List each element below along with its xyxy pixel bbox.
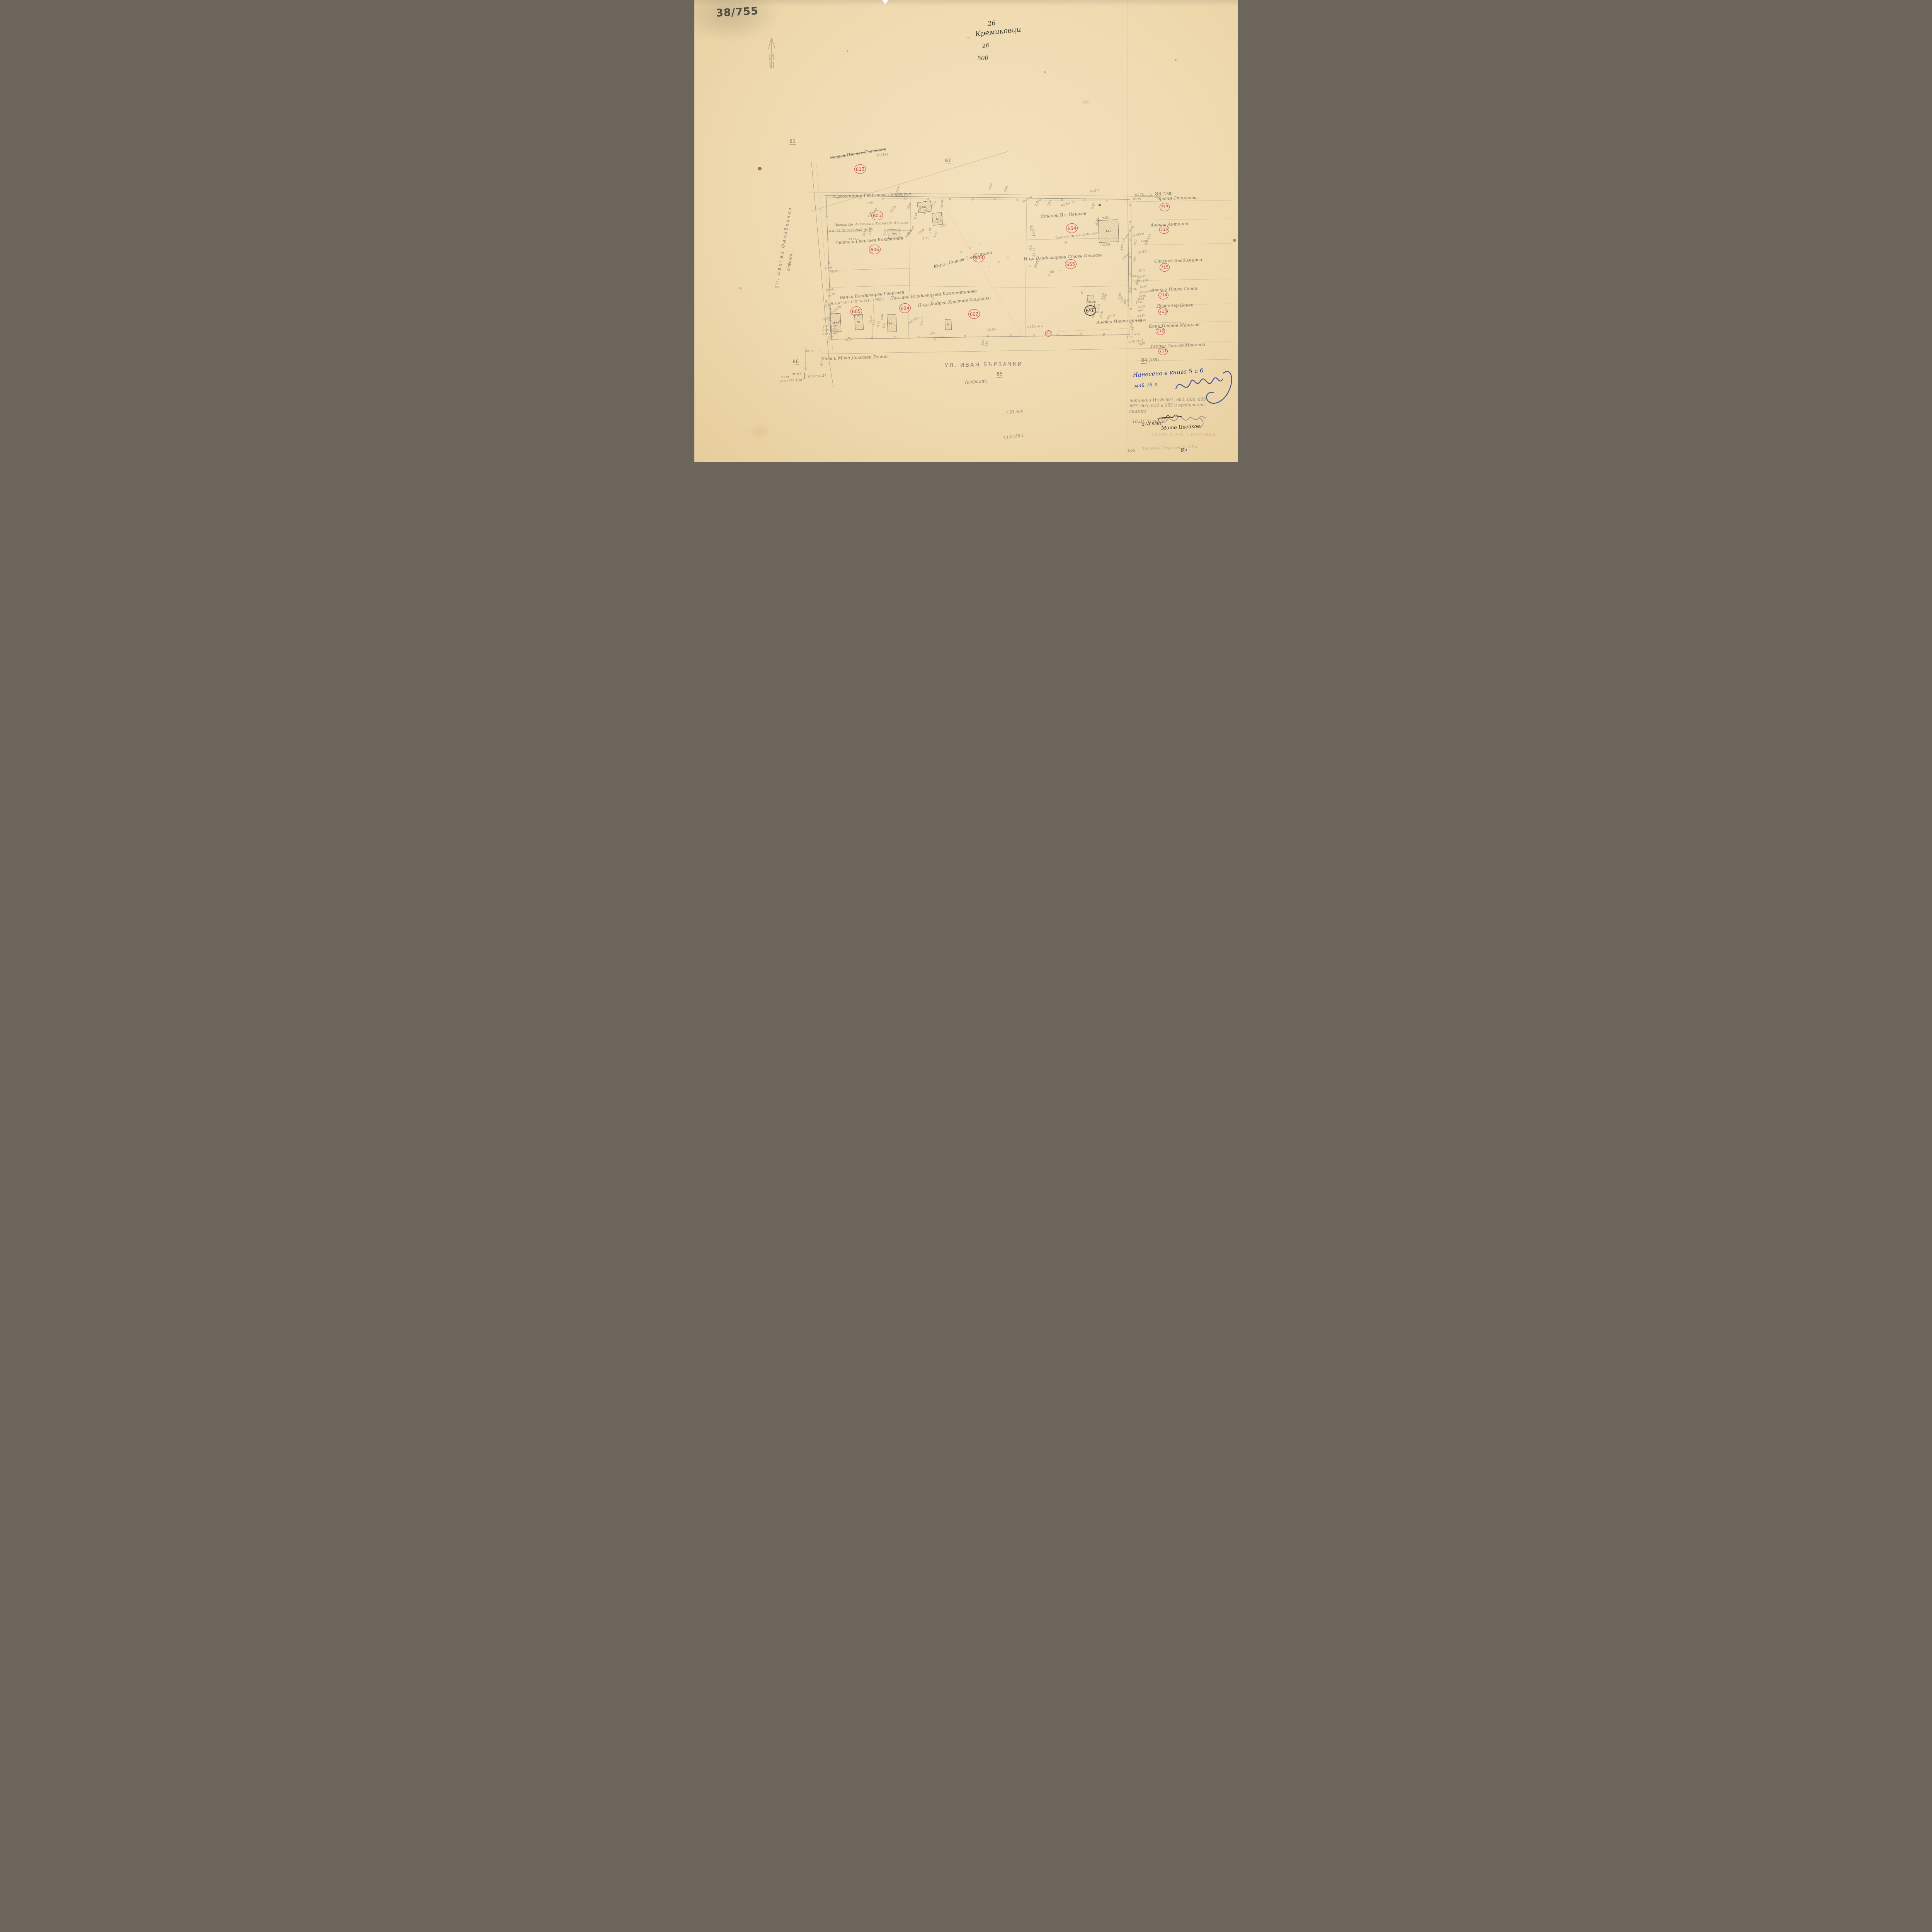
measurement: Н [1065,240,1068,245]
parcel-number-601: 601 [871,210,883,220]
measurement: 11.68 [868,226,872,235]
measurement: пт 100 [790,379,802,383]
map-ref-84: 84(189) [1141,356,1159,363]
building-label: МН [891,232,897,236]
measurement: 58- [1122,238,1126,243]
measurement: 42.50 [1061,201,1070,207]
measurement: 1359 [918,228,925,235]
measurement: -23.59- [847,237,857,241]
annotation-extra-5: Вр [1180,447,1187,453]
measurement: 1013 [981,338,985,345]
measurement: 17.46 [826,288,834,292]
measurement: -10.03- [1100,243,1111,247]
measurement: 8.52 [877,321,880,327]
annotation-extra-1: 13.VI.58.1 [1003,433,1024,440]
measurement: 2.95 [929,227,932,233]
measurement: -28.04- [844,338,853,342]
building-М: М [945,319,952,330]
measurement: 3.59 [1133,274,1139,277]
measurement: -9.91- [1101,216,1110,220]
map-ref-number: 85 [997,371,1003,378]
parcel-number-717: 717 [1159,202,1170,212]
measurement: 26 пм [806,349,814,352]
measurement: 5562 [1136,300,1143,304]
measurement: 3.85 [1091,202,1096,210]
measurement: 4966 [1003,185,1009,192]
parcel-number-602: 602 [968,308,980,319]
parcel-owner-711: Георги Павлов Манолов [1150,342,1205,349]
measurement: 1602.50 [1021,196,1032,204]
building-М: М [932,212,943,226]
measurement: 17.96 [824,266,832,270]
measurement: -8.71- [922,236,930,240]
measurement: 1202 [1032,229,1036,237]
measurement: 24-27 [1032,248,1036,257]
parcel-number-612: 612 [854,163,866,174]
measurement: 4402- [1120,243,1124,251]
parcel-owner-712: Коци Павлов Манолов [1149,322,1200,329]
measurement: 2.18 [1126,335,1133,339]
annotation-extra-6: Лада и Мика Димкови Тошин [821,354,888,361]
building-label: МС [921,205,927,209]
measurement: 16.79 [827,292,836,298]
measurement: 833 [985,341,988,347]
measurement: 321 [1131,325,1135,331]
map-ref-83: 83(188) [1155,190,1173,197]
annotation-extra-4: ГЕОРГИ АЛ. ГЕОРГИЕВ [1152,432,1216,437]
parcel-owner-715: Стамой Владимиров [1154,257,1202,264]
measurement: К [1081,291,1083,295]
parcel-number-715: 715 [1159,263,1170,272]
map-ref-81: 81 [789,138,796,144]
measurement: пт 87 [792,372,801,376]
map-ref-86: 86 [793,358,799,364]
measurement: 1.88 [929,332,935,335]
map-ref-number: 82 [945,157,951,164]
map-ref-number: 83 [1155,190,1161,197]
building-label: М [935,217,939,221]
map-ref-number: 81 [789,138,796,145]
measurement: 4.48 [1129,340,1135,344]
annotation-extra-3: Георги А. Георгиев. № 105 х [1143,445,1197,451]
measurement: 1010 [1126,299,1130,306]
measurement: м 370 [781,376,789,379]
measurement: 1665 [908,319,915,325]
measurement: 280 [1133,256,1137,262]
building-label: 1ПМЖ [1085,300,1096,304]
map-ref-suffix: (189) [1148,358,1159,362]
measurement: 8730 [1129,225,1135,233]
building-label: М [946,323,950,326]
measurement: 263 [1047,199,1052,206]
building-МС: МС [854,314,864,330]
measurement: 6.43 [933,231,938,238]
measurement: 8.40 [881,314,884,320]
measurement: } [803,372,807,380]
measurement: 7.60 [867,201,873,205]
parcel-owner-601: Александрия Георгиева Георгиева [833,191,911,199]
measurement: 8.43 [914,213,918,219]
measurement: а 190 м² у [1027,325,1043,329]
measurement: 5.00 [1134,332,1141,336]
parcel-number-601: 601 [1044,330,1052,337]
measurement: 053- [1095,307,1100,310]
map-annotation-layer: 612Георги Пранев Тютюков(7316)601Алексан… [694,0,1238,462]
measurement: 4.26 [882,322,886,328]
building-МН: МН [1098,219,1119,243]
map-ref-number: 84 [1141,357,1147,364]
annotation-extra-0: 7.XI.56г. [1006,409,1024,415]
measurement: 11.45 [872,318,876,326]
measurement: 2681 [1034,260,1039,269]
parcel-number-654: 654 [1066,223,1078,233]
map-ref-number: 86 [793,358,799,365]
building-МН: МН [888,229,901,239]
parcel-owner-713: Димитър Бонев [1156,303,1194,309]
building-1ПМЖ: 1ПМЖ [1087,295,1095,309]
measurement: 620 [1133,239,1138,245]
measurement: 5.30 [1129,286,1133,292]
measurement: 27.25 [931,297,935,305]
measurement: -22.67- [986,328,996,332]
measurement: 8.53 [883,229,887,236]
measurement: 5943 [1136,308,1144,313]
parcel-owner-714: Алексо Илиев Ганев [1151,286,1197,293]
measurement: 1245 [1132,233,1139,238]
measurement: 28 м 07 [780,379,790,383]
measurement: 4.98 [827,303,831,310]
parcel-note-654-0: Станой Сп. Владимиров [1054,231,1098,240]
parcel-note-612-0: (7316) [877,153,888,158]
measurement: (6281) [1090,189,1099,193]
parcel-owner-656: Алексо Илиев Ганев [1096,318,1142,325]
building-МС: МС [917,201,932,213]
measurement: -6.41- [830,270,838,274]
building-label: МН [1105,229,1111,233]
map-ref-suffix: (188) [1162,192,1173,196]
building-label: 2МН [831,321,839,325]
measurement: 63.85 [1137,314,1145,318]
parcel-number-606: 606 [869,244,881,254]
measurement: 3381 [1138,268,1145,273]
measurement: 3390× [1122,252,1130,260]
parcel-owner-654: Станой Вл. Пешков [1041,211,1087,219]
measurement: 43.22 [1138,275,1146,279]
parcel-number-655: 655 [1065,259,1077,269]
map-ref-82: 82 [945,157,951,163]
building-label: М Г [888,321,895,325]
measurement: 4732 [988,183,993,190]
scanned-cadastral-sheet: 38/755 – 26 Кремиковци 26 500 ул. Цветан… [694,0,1238,462]
measurement: -27.10- [920,316,924,327]
map-ref-85: 85 [997,371,1003,377]
annotation-extra-2: 6о5 [1128,448,1136,453]
measurement: 46.90 [1139,285,1148,289]
measurement: 327 [1129,320,1133,325]
building-label: МС [856,320,862,324]
parcel-note-601-0: Иванка Цв. Алексова и Траян Цв. Алексов [834,221,908,227]
measurement: 82.78 [1135,193,1144,197]
parcel-number-604: 604 [899,303,911,313]
parcel-owner-716: Алексо Антонов [1150,221,1188,228]
measurement: 2892 [906,202,912,210]
measurement: 169 [1095,304,1100,307]
measurement: 10.35 [890,205,896,213]
measurement: 421 [1034,200,1040,207]
measurement: 60 [1050,270,1054,274]
parcel-note-605-0: Н.А.К° 165 Т.-Х° А.2312 1952 г [830,298,884,306]
measurement: -20.00- [940,199,944,209]
measurement: (48.75) 48.77 [1139,289,1156,294]
building-2МН: 2МН [830,313,841,332]
measurement: (8317) [1137,249,1148,254]
measurement: 83.75 [1133,198,1141,201]
measurement: от кол. 27 [808,374,827,379]
building-М Г: М Г [887,314,897,332]
